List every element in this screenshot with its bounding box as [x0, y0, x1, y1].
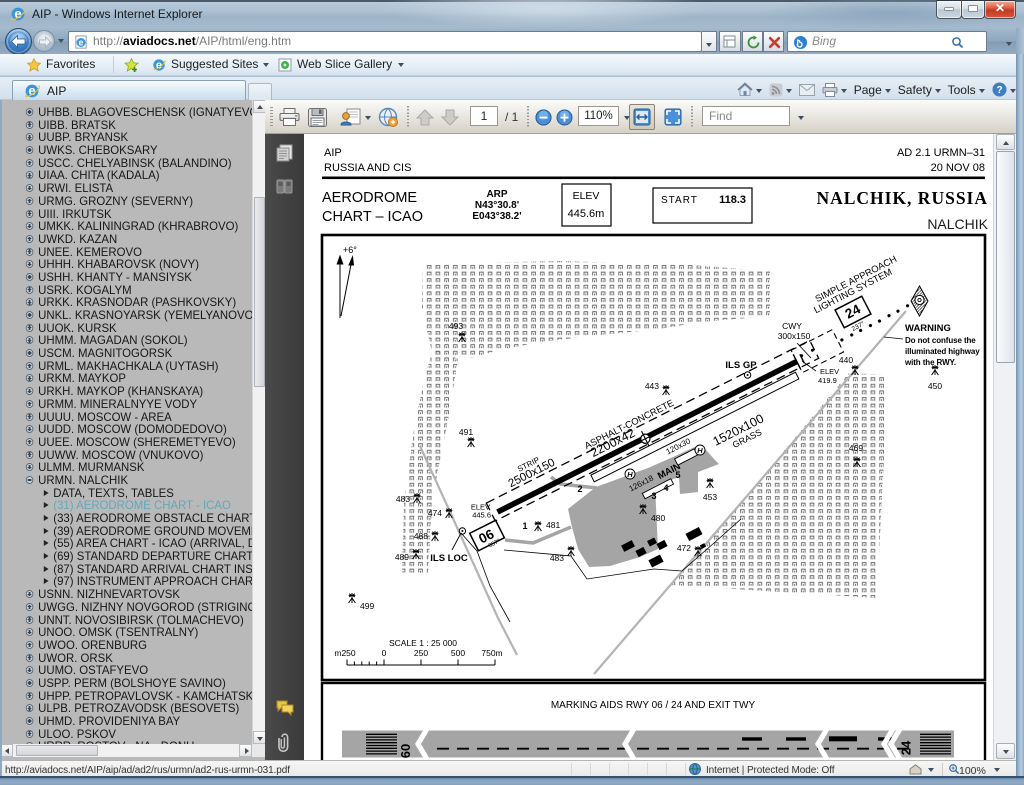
svg-text:RUSSIA AND CIS: RUSSIA AND CIS [324, 162, 411, 174]
svg-text:445.6: 445.6 [472, 511, 491, 520]
svg-text:60: 60 [398, 744, 413, 758]
svg-text:NALCHIK, RUSSIA: NALCHIK, RUSSIA [816, 188, 988, 208]
svg-text:N43°30.8': N43°30.8' [475, 200, 519, 211]
svg-text:483: 483 [550, 553, 564, 563]
svg-text:?: ? [996, 85, 1002, 96]
svg-text:illuminated highway: illuminated highway [905, 347, 980, 356]
svg-text:472: 472 [677, 543, 691, 553]
svg-text:AIP: AIP [324, 147, 342, 159]
svg-text:480: 480 [651, 513, 665, 523]
svg-text:H: H [697, 446, 703, 455]
svg-text:499: 499 [360, 601, 374, 611]
svg-text:MARKING AIDS RWY 06 / 24 AND E: MARKING AIDS RWY 06 / 24 AND EXIT TWY [551, 700, 756, 711]
svg-text:5: 5 [675, 470, 680, 480]
svg-text:ELEV: ELEV [820, 367, 839, 376]
svg-text:500: 500 [451, 648, 465, 658]
svg-text:489: 489 [395, 552, 409, 562]
svg-text:+6°: +6° [343, 245, 357, 255]
svg-text:1: 1 [522, 521, 527, 531]
svg-text:20 NOV 08: 20 NOV 08 [931, 162, 985, 174]
svg-text:ILS LOC: ILS LOC [430, 553, 468, 564]
svg-text:E043°38.2': E043°38.2' [472, 211, 521, 222]
svg-text:Do not confuse the: Do not confuse the [905, 336, 976, 345]
svg-text:START: START [661, 195, 698, 206]
svg-text:with the RWY.: with the RWY. [904, 358, 956, 367]
svg-text:440: 440 [839, 355, 853, 365]
svg-text:24: 24 [898, 740, 913, 755]
svg-text:AERODROME: AERODROME [322, 190, 417, 206]
svg-text:H: H [627, 470, 633, 479]
svg-text:118.3: 118.3 [719, 194, 746, 206]
svg-text:443: 443 [645, 381, 659, 391]
svg-text:SCALE 1 : 25 000: SCALE 1 : 25 000 [389, 638, 457, 648]
svg-text:2: 2 [577, 484, 582, 494]
svg-text:450: 450 [928, 381, 942, 391]
svg-text:e: e [79, 37, 84, 47]
svg-text:CWY: CWY [782, 321, 802, 331]
svg-text:NALCHIK: NALCHIK [927, 216, 988, 232]
svg-text:453: 453 [703, 492, 717, 502]
svg-text:750m: 750m [481, 648, 502, 658]
svg-text:m250: m250 [334, 648, 356, 658]
svg-text:AD 2.1 URMN–31: AD 2.1 URMN–31 [897, 147, 985, 159]
svg-text:445.6m: 445.6m [568, 208, 605, 220]
svg-text:4: 4 [663, 483, 668, 493]
svg-text:WARNING: WARNING [905, 323, 951, 334]
svg-text:493: 493 [449, 321, 463, 331]
svg-text:483: 483 [396, 494, 410, 504]
svg-text:469: 469 [849, 443, 863, 453]
svg-text:ARP: ARP [486, 189, 507, 200]
svg-text:CHART – ICAO: CHART – ICAO [322, 209, 423, 225]
svg-text:491: 491 [459, 427, 473, 437]
svg-text:300x150: 300x150 [778, 331, 811, 341]
svg-text:0: 0 [382, 648, 387, 658]
svg-text:3: 3 [651, 491, 656, 501]
svg-text:419.9: 419.9 [818, 376, 837, 385]
svg-text:481: 481 [546, 520, 560, 530]
svg-text:ILS GP: ILS GP [725, 360, 757, 371]
svg-text:488: 488 [414, 531, 428, 541]
svg-text:474: 474 [428, 508, 442, 518]
svg-text:ELEV: ELEV [573, 190, 600, 202]
svg-text:250: 250 [414, 648, 428, 658]
